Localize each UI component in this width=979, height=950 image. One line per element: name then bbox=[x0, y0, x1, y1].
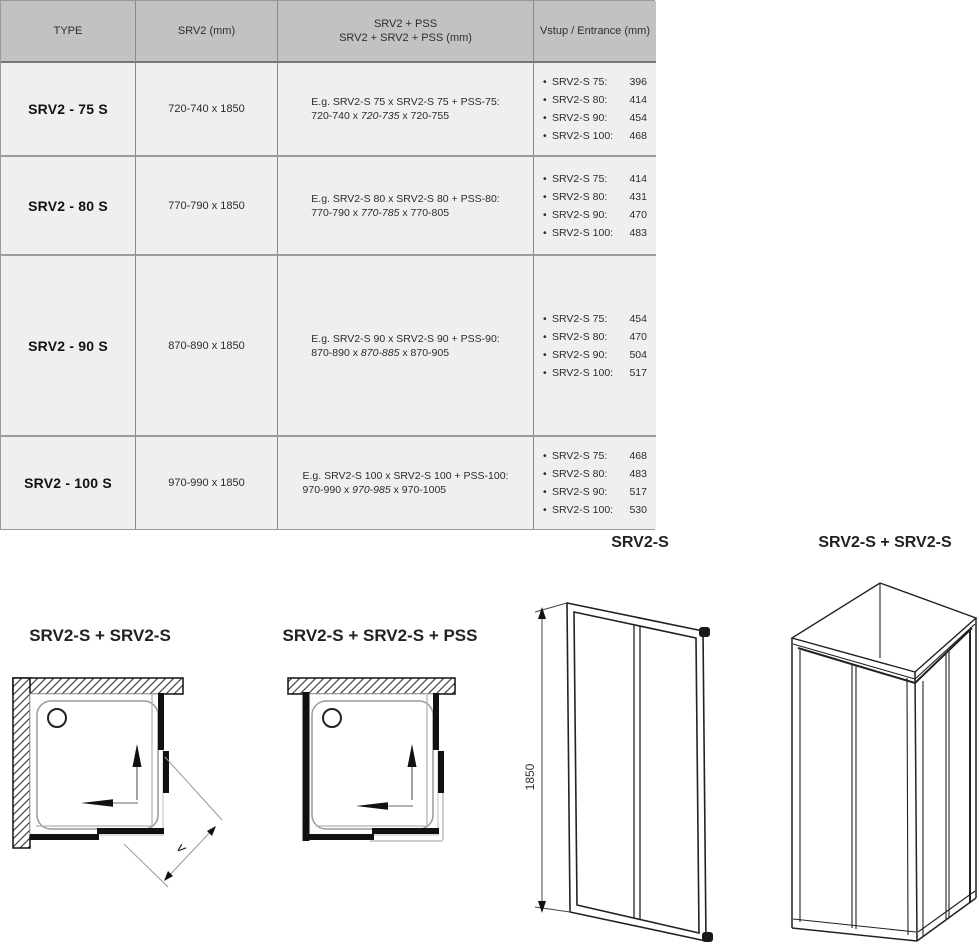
entrance-item: •SRV2-S 90:504 bbox=[543, 346, 647, 364]
entrance-item: •SRV2-S 75:454 bbox=[543, 310, 647, 328]
example-line2: 870-890 x 870-885 x 870-905 bbox=[311, 346, 499, 360]
title-plan-double: SRV2-S + SRV2-S bbox=[8, 626, 192, 646]
entrance-item: •SRV2-S 90:454 bbox=[543, 109, 647, 127]
entrance-item: •SRV2-S 100:530 bbox=[543, 501, 647, 519]
entrance-item: •SRV2-S 80:431 bbox=[543, 188, 647, 206]
entrance-item: •SRV2-S 90:470 bbox=[543, 206, 647, 224]
row-type: SRV2 - 75 S bbox=[1, 63, 136, 157]
row-example: E.g. SRV2-S 90 x SRV2-S 90 + PSS-90: 870… bbox=[278, 256, 534, 437]
front-face-panels bbox=[792, 650, 917, 941]
row-size: 720-740 x 1850 bbox=[136, 63, 278, 157]
panel-divider bbox=[634, 625, 640, 919]
wall-top bbox=[288, 678, 455, 694]
door-frame bbox=[567, 603, 706, 941]
drain-icon bbox=[48, 709, 66, 727]
top-rim bbox=[792, 583, 976, 683]
header-combinations: SRV2 + PSS SRV2 + SRV2 + PSS (mm) bbox=[278, 1, 534, 63]
title-front-view: SRV2-S bbox=[560, 534, 720, 552]
row-type: SRV2 - 100 S bbox=[1, 437, 136, 529]
example-line1: E.g. SRV2-S 75 x SRV2-S 75 + PSS-75: bbox=[311, 95, 499, 109]
row-type: SRV2 - 90 S bbox=[1, 256, 136, 437]
entrance-item: •SRV2-S 100:483 bbox=[543, 224, 647, 242]
catalog-page: TYPE SRV2 (mm) SRV2 + PSS SRV2 + SRV2 + … bbox=[0, 0, 979, 950]
entrance-item: •SRV2-S 80:470 bbox=[543, 328, 647, 346]
row-size: 970-990 x 1850 bbox=[136, 437, 278, 529]
drain-icon bbox=[323, 709, 341, 727]
example-line1: E.g. SRV2-S 100 x SRV2-S 100 + PSS-100: bbox=[303, 469, 509, 483]
entrance-item: •SRV2-S 90:517 bbox=[543, 483, 647, 501]
example-line2: 770-790 x 770-785 x 770-805 bbox=[311, 206, 499, 220]
row-example: E.g. SRV2-S 80 x SRV2-S 80 + PSS-80: 770… bbox=[278, 157, 534, 256]
entrance-item: •SRV2-S 100:517 bbox=[543, 364, 647, 382]
header-type: TYPE bbox=[1, 1, 136, 63]
entrance-item: •SRV2-S 75:414 bbox=[543, 170, 647, 188]
row-size: 870-890 x 1850 bbox=[136, 256, 278, 437]
title-plan-pss: SRV2-S + SRV2-S + PSS bbox=[272, 626, 488, 646]
plan-diagram-pss bbox=[270, 660, 490, 950]
row-entrance: •SRV2-S 75:468 •SRV2-S 80:483 •SRV2-S 90… bbox=[534, 437, 656, 529]
row-example: E.g. SRV2-S 100 x SRV2-S 100 + PSS-100: … bbox=[278, 437, 534, 529]
row-entrance: •SRV2-S 75:396 •SRV2-S 80:414 •SRV2-S 90… bbox=[534, 63, 656, 157]
corner-3d-diagram bbox=[760, 578, 979, 948]
title-corner-3d: SRV2-S + SRV2-S bbox=[795, 534, 975, 552]
entrance-item: •SRV2-S 75:468 bbox=[543, 447, 647, 465]
header-srv2-mm: SRV2 (mm) bbox=[136, 1, 278, 63]
header-entrance: Vstup / Entrance (mm) bbox=[534, 1, 656, 63]
height-dimension: 1850 bbox=[523, 603, 570, 913]
row-entrance: •SRV2-S 75:454 •SRV2-S 80:470 •SRV2-S 90… bbox=[534, 256, 656, 437]
header-combinations-line2: SRV2 + SRV2 + PSS (mm) bbox=[339, 31, 472, 45]
side-face-panels bbox=[917, 630, 976, 941]
entrance-item: •SRV2-S 75:396 bbox=[543, 73, 647, 91]
entrance-item: •SRV2-S 80:483 bbox=[543, 465, 647, 483]
entrance-dimension-label: v bbox=[174, 839, 190, 856]
row-type: SRV2 - 80 S bbox=[1, 157, 136, 256]
wall-left bbox=[13, 678, 30, 848]
front-view-diagram: 1850 bbox=[520, 585, 720, 950]
height-dimension-label: 1850 bbox=[523, 763, 537, 790]
wall-top bbox=[13, 678, 183, 694]
spec-table: TYPE SRV2 (mm) SRV2 + PSS SRV2 + SRV2 + … bbox=[0, 0, 655, 530]
vertical-edges bbox=[792, 618, 976, 941]
entrance-item: •SRV2-S 80:414 bbox=[543, 91, 647, 109]
plan-diagram-double: v bbox=[0, 660, 250, 950]
example-line2: 720-740 x 720-735 x 720-755 bbox=[311, 109, 499, 123]
shower-tray bbox=[30, 694, 163, 835]
header-combinations-line1: SRV2 + PSS bbox=[339, 17, 472, 31]
entrance-item: •SRV2-S 100:468 bbox=[543, 127, 647, 145]
row-entrance: •SRV2-S 75:414 •SRV2-S 80:431 •SRV2-S 90… bbox=[534, 157, 656, 256]
example-line1: E.g. SRV2-S 80 x SRV2-S 80 + PSS-80: bbox=[311, 192, 499, 206]
row-example: E.g. SRV2-S 75 x SRV2-S 75 + PSS-75: 720… bbox=[278, 63, 534, 157]
shower-tray bbox=[305, 694, 438, 835]
example-line1: E.g. SRV2-S 90 x SRV2-S 90 + PSS-90: bbox=[311, 332, 499, 346]
row-size: 770-790 x 1850 bbox=[136, 157, 278, 256]
example-line2: 970-990 x 970-985 x 970-1005 bbox=[303, 483, 509, 497]
